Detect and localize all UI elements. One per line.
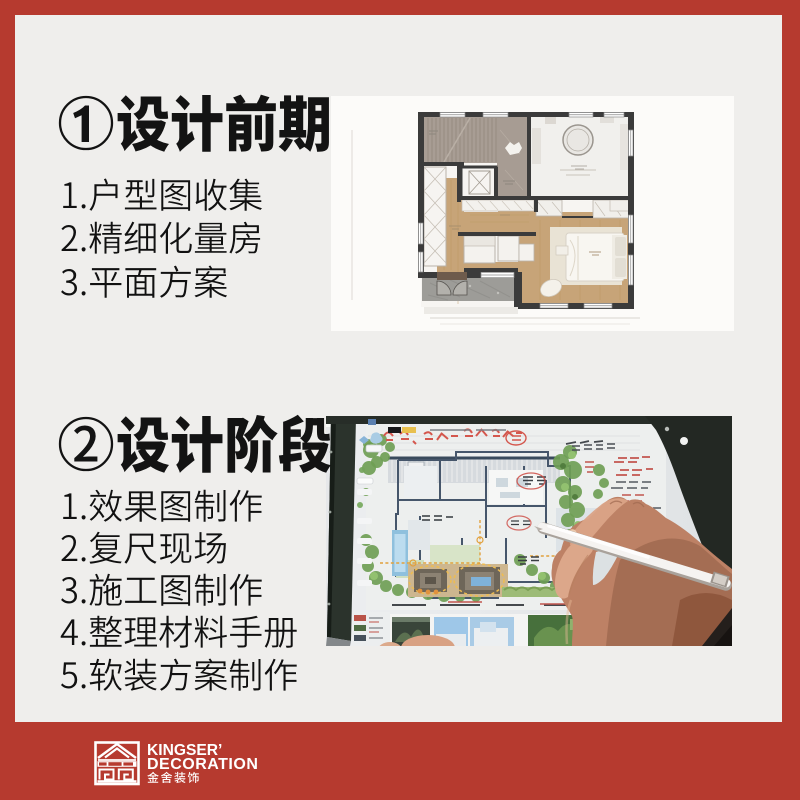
svg-text:DECORATION: DECORATION bbox=[147, 756, 258, 773]
